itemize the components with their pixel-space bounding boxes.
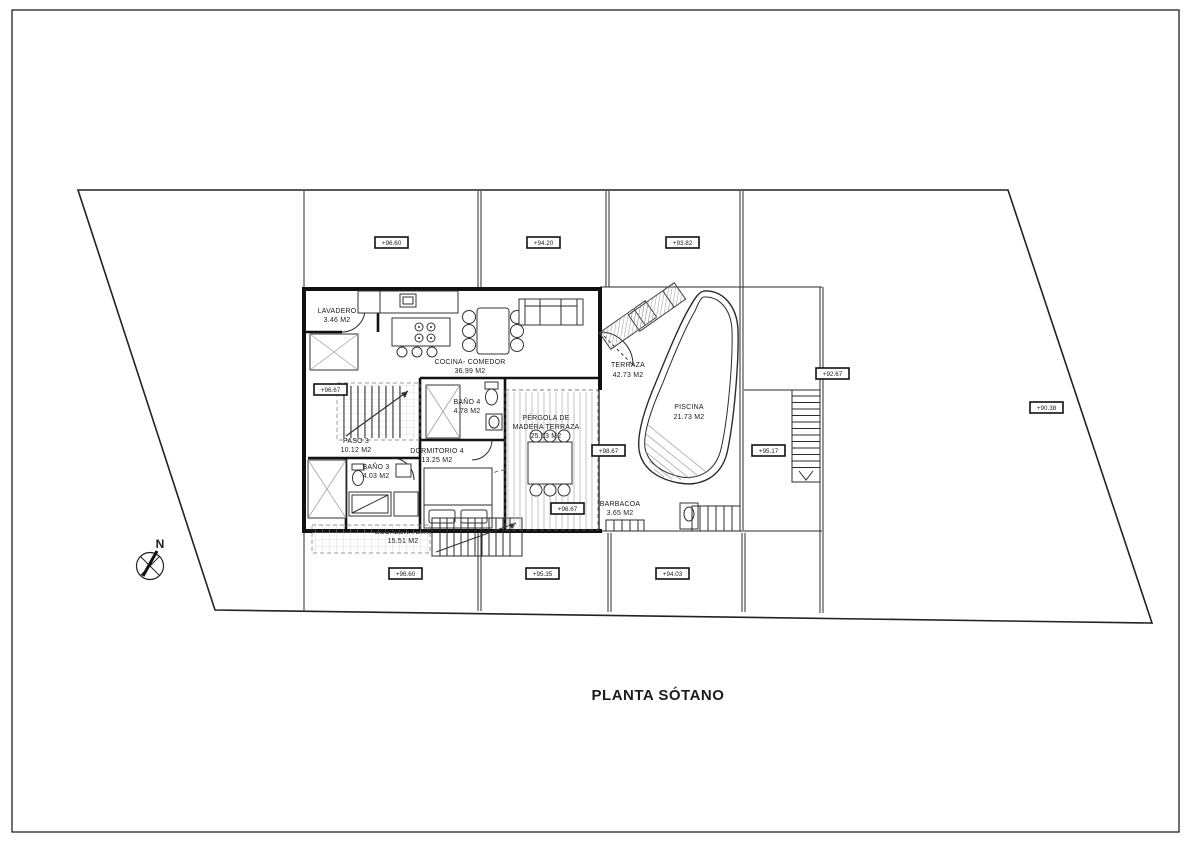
elevation-marker-top-right: +93.82 [666,237,699,248]
svg-text:+96.60: +96.60 [396,571,416,578]
bano4-door-arc [472,440,492,460]
svg-text:42.73 M2: 42.73 M2 [613,372,644,379]
room-label-barbacoa: BARBACOA 3.65 M2 [600,501,641,517]
sheet-border [12,10,1179,832]
svg-text:+96.60: +96.60 [382,240,402,247]
elevation-marker-bottom-left: +96.60 [389,568,422,579]
interior-stair [337,383,420,440]
svg-text:TERRAZA: TERRAZA [611,362,645,369]
svg-text:4.03 M2: 4.03 M2 [363,473,390,480]
pool-hatch [645,425,706,480]
toilet-tank [485,382,498,389]
svg-text:+92.67: +92.67 [823,371,843,378]
elevation-marker-bottom-mid: +95.35 [526,568,559,579]
room-label-bano3: BAÑO 3 4.03 M2 [363,462,390,480]
room-label-paso3: PASO 3 10.12 M2 [341,438,372,454]
room-label-lavadero: LAVADERO 3.46 M2 [318,308,357,324]
elevation-marker-barbacoa-deck: +96.67 [551,503,584,514]
svg-text:4.78 M2: 4.78 M2 [454,408,481,415]
svg-text:+96.67: +96.67 [558,506,578,513]
exterior-stair-east [744,390,820,482]
kitchen-counter [358,291,458,313]
svg-text:PISCINA: PISCINA [674,404,704,411]
elevation-marker-terraza-deck: +98.67 [592,445,625,456]
svg-text:N: N [156,537,165,551]
page-title: PLANTA SÓTANO [592,686,725,704]
svg-text:MADERA TERRAZA: MADERA TERRAZA [513,424,580,431]
bano3-fixtures [349,464,418,516]
svg-text:+94.20: +94.20 [534,240,554,247]
svg-text:ESCALERA EXT.: ESCALERA EXT. [375,529,431,536]
svg-text:+95.17: +95.17 [759,448,779,455]
room-label-terraza: TERRAZA 42.73 M2 [611,362,645,379]
svg-text:+98.67: +98.67 [599,448,619,455]
kitchen-island [392,318,450,357]
svg-text:36.99 M2: 36.99 M2 [455,368,486,375]
svg-text:+94.03: +94.03 [663,571,683,578]
svg-text:3.65 M2: 3.65 M2 [607,510,634,517]
elevation-marker-top-left: +96.60 [375,237,408,248]
svg-text:BAÑO 4: BAÑO 4 [454,397,481,406]
elevation-marker-garden-right-mid: +95.17 [752,445,785,456]
svg-text:+93.82: +93.82 [673,240,693,247]
svg-text:10.12 M2: 10.12 M2 [341,447,372,454]
svg-text:15.51 M2: 15.51 M2 [388,538,419,545]
sofa [519,299,583,325]
svg-text:+95.35: +95.35 [533,571,553,578]
plot-boundary [78,190,1152,623]
svg-text:PÉRGOLA DE: PÉRGOLA DE [522,413,569,422]
svg-text:COCINA- COMEDOR: COCINA- COMEDOR [434,359,505,366]
elevation-marker-plot-far-right: +90.38 [1030,402,1063,413]
svg-text:13.25 M2: 13.25 M2 [422,457,453,464]
patio-lightwell-bottom [308,460,346,518]
north-compass-icon: N [137,537,165,580]
elevation-marker-bottom-right: +94.03 [656,568,689,579]
stair-direction-arrow [799,471,813,480]
svg-text:PASO 3: PASO 3 [343,438,369,445]
elevation-marker-garden-right-upper: +92.67 [816,368,849,379]
floor-plan-svg: LAVADERO 3.46 M2 COCINA- COMEDOR 36.99 M… [0,0,1191,842]
terrace-steps-right [692,506,740,531]
terrace-steps-left [606,520,644,531]
dining-table [463,308,524,354]
patio-lightwell-top [310,334,358,370]
svg-text:3.46 M2: 3.46 M2 [324,317,351,324]
pillow [429,510,455,523]
svg-text:BARBACOA: BARBACOA [600,501,641,508]
drawing-sheet: LAVADERO 3.46 M2 COCINA- COMEDOR 36.99 M… [0,0,1191,842]
svg-text:+90.38: +90.38 [1037,405,1057,412]
svg-text:LAVADERO: LAVADERO [318,308,357,315]
svg-text:21.73 M2: 21.73 M2 [674,414,705,421]
room-label-piscina: PISCINA 21.73 M2 [674,404,705,421]
barbecue-unit [680,503,698,529]
svg-text:BAÑO 3: BAÑO 3 [363,462,390,471]
pillow [461,510,487,523]
sink-icon [396,464,411,477]
svg-text:DORMITORIO 4: DORMITORIO 4 [410,448,464,455]
compass-needle [143,551,157,576]
toilet-icon [486,389,498,405]
elevation-marker-top-mid: +94.20 [527,237,560,248]
svg-text:+96.67: +96.67 [321,387,341,394]
svg-text:25.63 M2: 25.63 M2 [531,433,562,440]
elevation-marker-interior-stair: +96.67 [314,384,347,395]
room-label-dormitorio4: DORMITORIO 4 13.25 M2 [410,448,464,464]
room-label-cocina: COCINA- COMEDOR 36.99 M2 [434,359,505,375]
